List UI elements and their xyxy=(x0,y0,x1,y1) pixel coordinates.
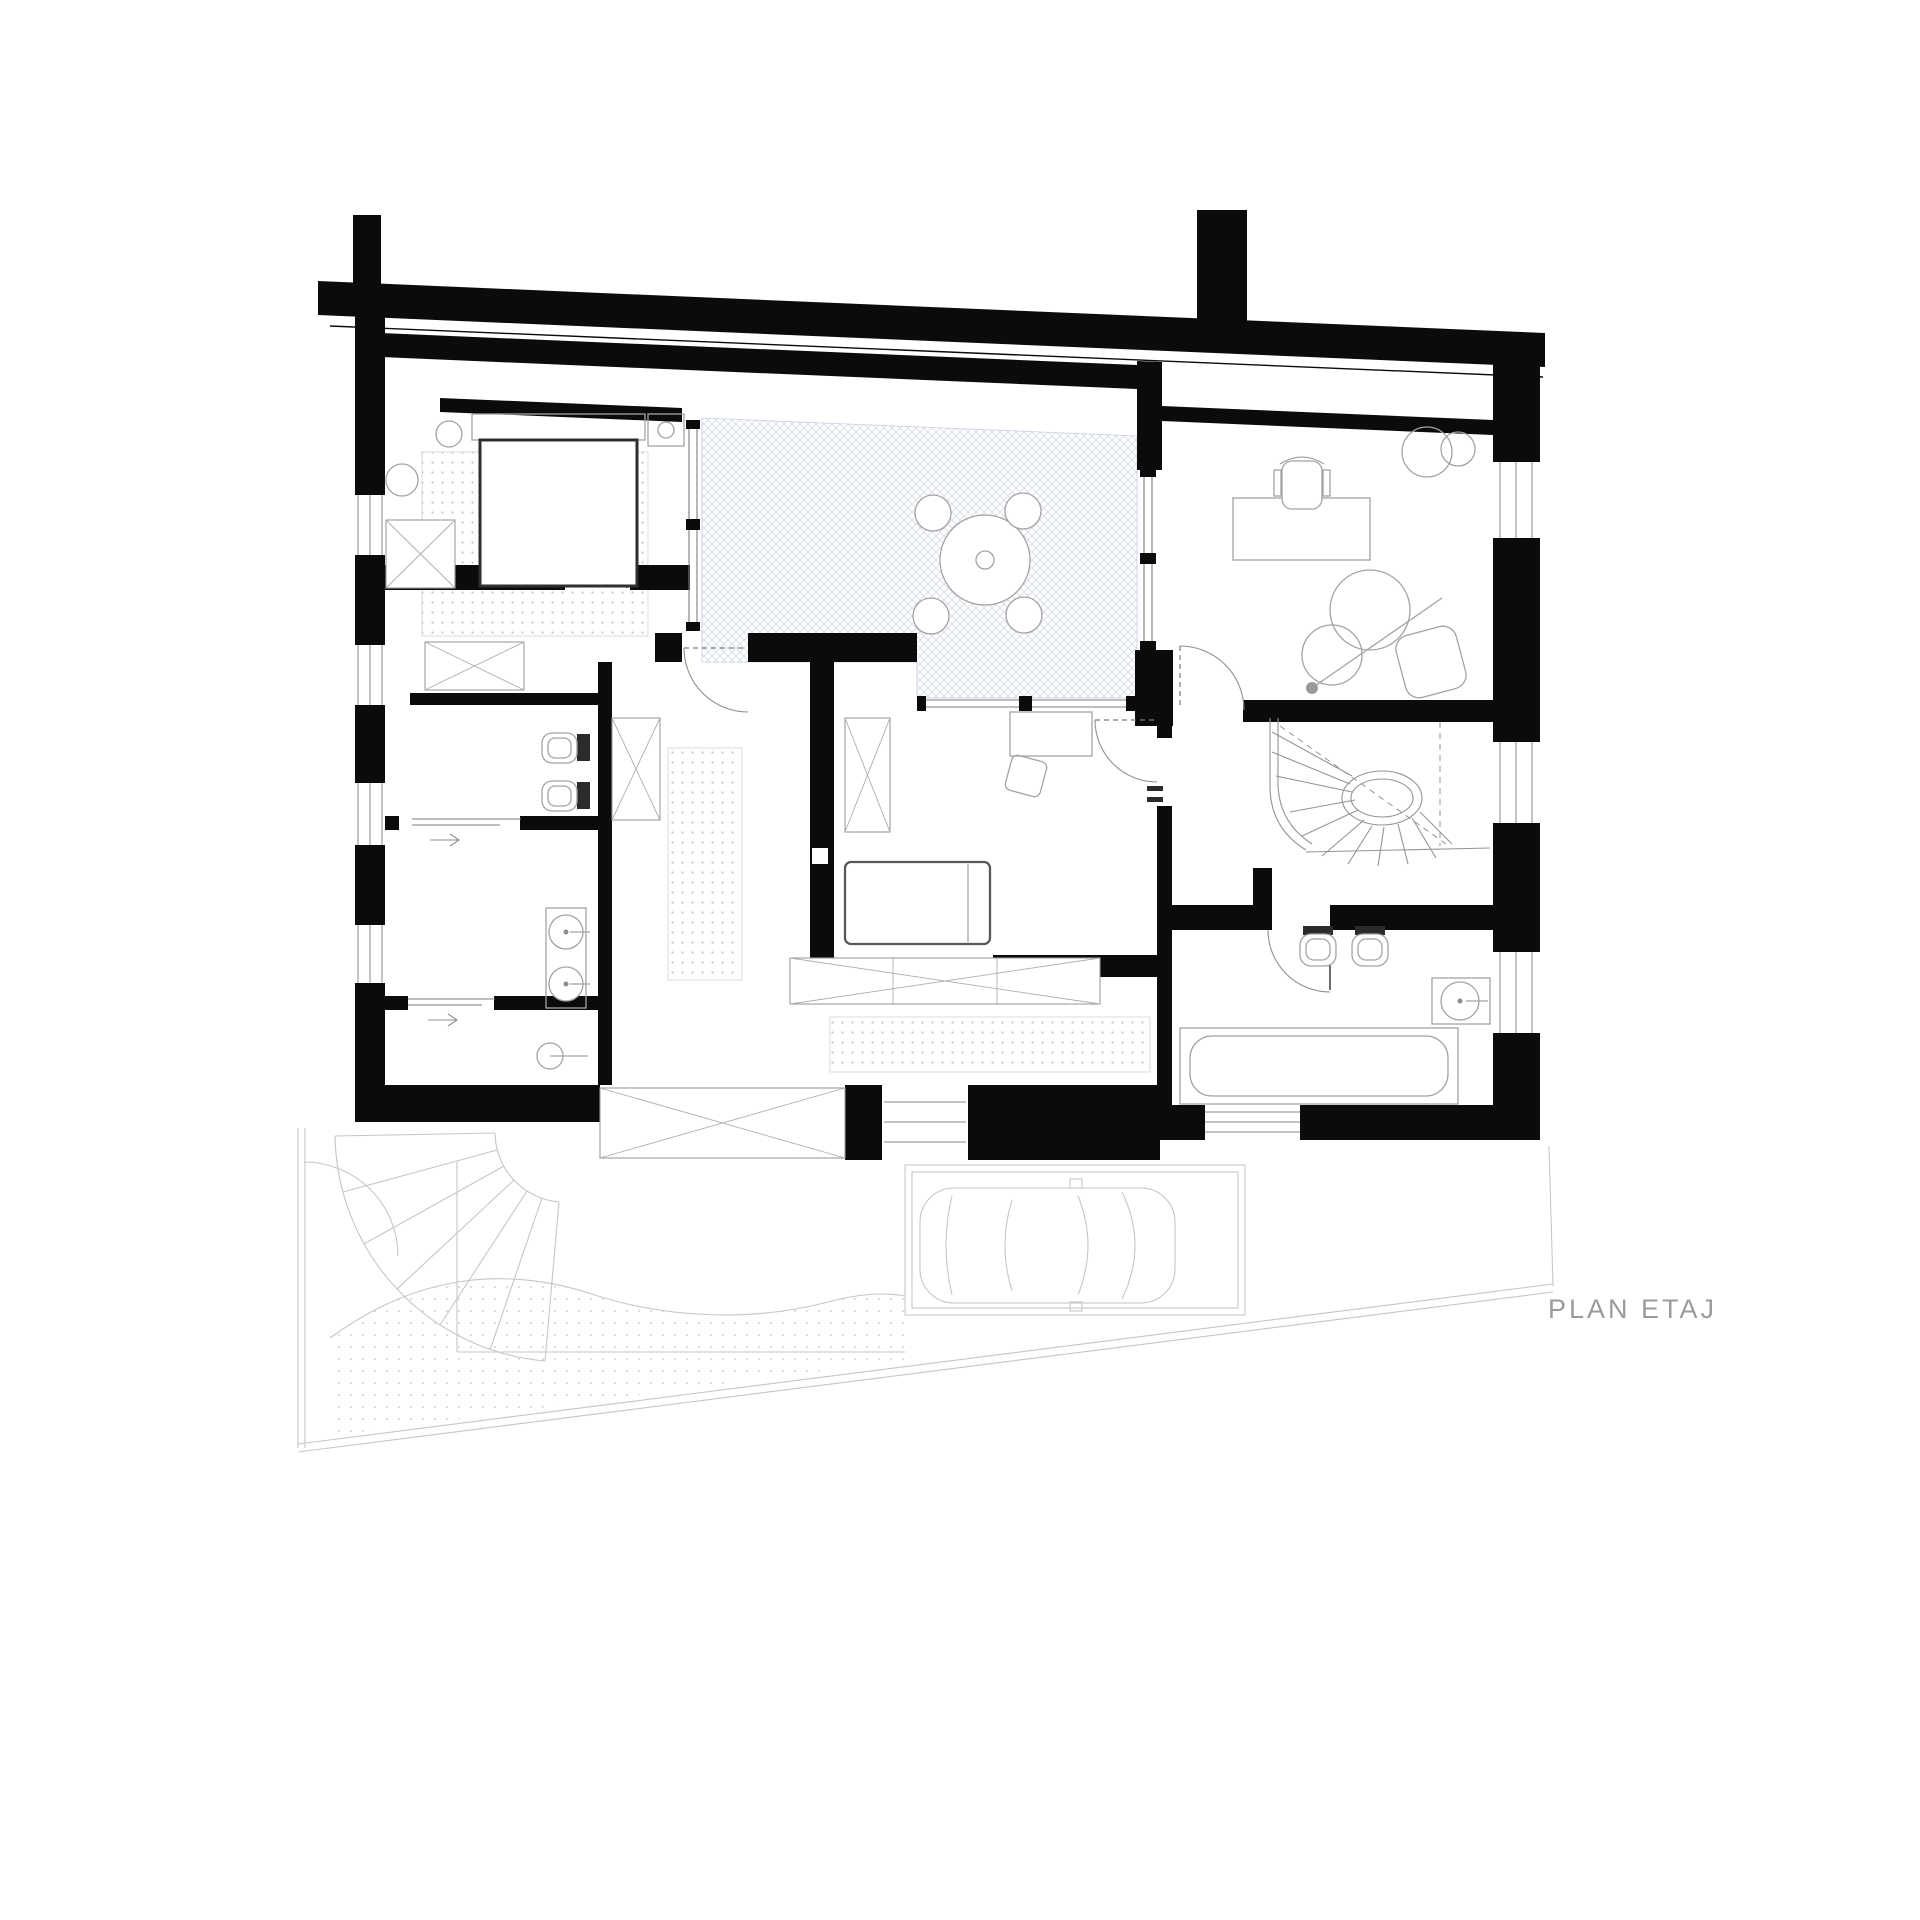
dressing-closet-row xyxy=(790,958,1100,1004)
study-desk xyxy=(1010,712,1092,756)
closet xyxy=(425,642,524,690)
office-west-pier xyxy=(1137,361,1162,470)
office xyxy=(1233,427,1475,701)
bedroom-terrace-glazing xyxy=(686,420,700,631)
east-windows xyxy=(1493,455,1540,1040)
wc-tank xyxy=(577,734,590,761)
closet xyxy=(845,718,890,832)
shower-head xyxy=(537,1043,588,1069)
corridor-dressing xyxy=(425,642,1100,1158)
window xyxy=(355,638,385,712)
bathtub xyxy=(1180,1028,1458,1104)
ghost-paving-stipple xyxy=(330,1279,905,1436)
window xyxy=(1493,945,1540,1040)
sliding-door-lower xyxy=(408,999,495,1026)
armchair xyxy=(1393,623,1469,701)
plan-title: PLAN ETAJ xyxy=(1548,1294,1717,1324)
bidet xyxy=(542,781,577,811)
understair-void xyxy=(600,1088,845,1158)
window xyxy=(355,776,385,852)
desk-chair xyxy=(1004,754,1048,798)
lounge-corner xyxy=(1302,570,1469,701)
window xyxy=(884,1102,966,1142)
plant xyxy=(386,464,418,496)
stool xyxy=(1005,493,1041,529)
stool xyxy=(1006,597,1042,633)
office-door xyxy=(1180,646,1244,710)
window xyxy=(1205,1112,1300,1132)
winder-staircase xyxy=(1270,718,1490,866)
lounge-chair xyxy=(1330,570,1410,650)
stair-pier xyxy=(1253,868,1272,930)
floor-plan-drawing: PLAN ETAJ xyxy=(0,0,1920,1920)
kid-room-door xyxy=(1095,720,1157,782)
door-handle xyxy=(1147,786,1163,791)
washbasin xyxy=(1441,982,1488,1020)
bidet xyxy=(1352,934,1388,966)
window xyxy=(1493,455,1540,545)
car-mirror xyxy=(1070,1179,1082,1188)
party-wall-stub-left xyxy=(353,215,381,290)
terrace-se-pier xyxy=(1135,650,1173,726)
double-bed xyxy=(480,440,637,586)
bedroom-wardrobe xyxy=(386,520,455,588)
floor-lamp xyxy=(1312,598,1442,688)
window xyxy=(1493,735,1540,830)
side-table xyxy=(1302,625,1362,685)
corridor-runner-rug xyxy=(668,748,742,980)
floor-lamp-base xyxy=(1306,682,1318,694)
ghost-door-arc xyxy=(304,1162,398,1256)
stair-walk-line xyxy=(1280,726,1446,844)
door-handle xyxy=(1147,797,1163,802)
office-north-wall xyxy=(1162,406,1493,435)
bathroom-se xyxy=(1180,934,1490,1104)
bidet-tank xyxy=(577,782,590,809)
office-chair xyxy=(1274,457,1330,509)
stool xyxy=(915,495,951,531)
dressing-rug xyxy=(830,1017,1150,1072)
party-wall-stub-right xyxy=(1197,210,1247,337)
stool xyxy=(913,598,949,634)
window xyxy=(355,488,385,562)
bedroom-north-wall xyxy=(440,398,682,422)
office-terrace-glazing xyxy=(1140,468,1156,650)
sliding-door-upper xyxy=(412,819,521,846)
closet xyxy=(612,718,660,820)
bedside-lamp xyxy=(436,421,462,447)
car xyxy=(920,1179,1175,1311)
window xyxy=(355,918,385,990)
wc xyxy=(542,733,577,763)
ghost-ground-floor xyxy=(298,1128,1553,1452)
washbasin xyxy=(549,967,590,1001)
floor-plan-canvas: PLAN ETAJ xyxy=(0,0,1920,1920)
south-wall xyxy=(355,1085,600,1122)
wc xyxy=(1300,934,1336,966)
plant xyxy=(1402,427,1452,477)
round-table xyxy=(940,515,1030,605)
plant xyxy=(1441,432,1475,466)
washbasin xyxy=(549,915,590,949)
